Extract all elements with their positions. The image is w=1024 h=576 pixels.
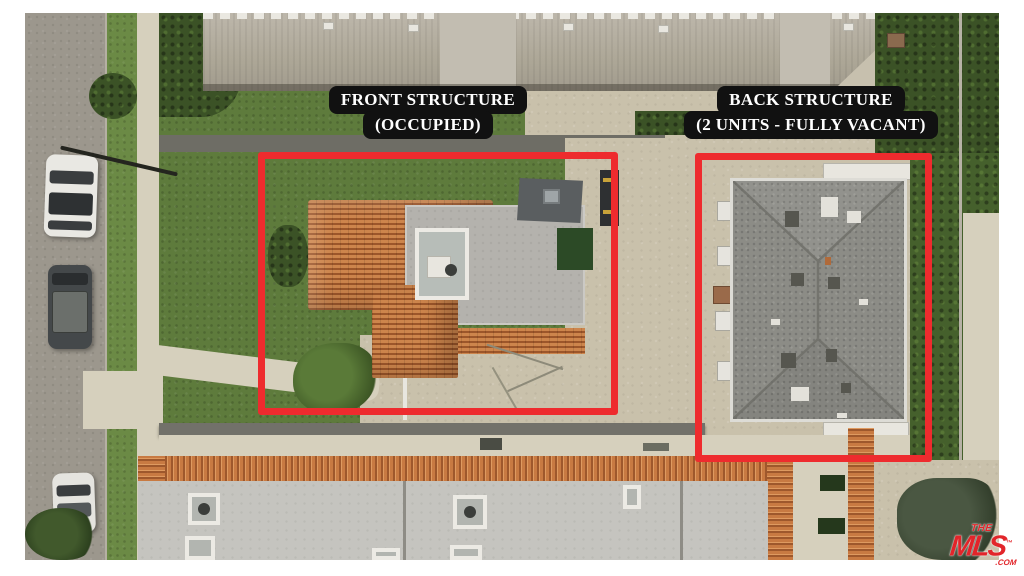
roof-vent — [323, 22, 334, 30]
top-apartment-roof — [203, 13, 880, 91]
driveway-apron — [83, 371, 163, 429]
back-label-line1: BACK STRUCTURE — [717, 86, 905, 114]
door-mat — [820, 475, 845, 491]
parked-car-white — [44, 154, 99, 238]
mls-watermark-logo: THE MLS™ .COM — [948, 524, 1024, 570]
roof-seam — [680, 481, 683, 560]
door-mat-2 — [818, 518, 845, 534]
roof-vent — [658, 25, 669, 33]
roof-section-gap — [440, 13, 516, 91]
roof-vent — [843, 23, 854, 31]
skylight — [188, 493, 220, 525]
front-structure-annotation-box — [258, 152, 618, 415]
roof-vent — [408, 24, 419, 32]
front-structure-label: FRONT STRUCTURE (OCCUPIED) — [248, 86, 608, 139]
roof-section-gap-2 — [780, 13, 830, 91]
bottom-tile-corner-right — [767, 456, 793, 560]
bottom-left-tree — [25, 508, 95, 560]
bottom-flat-roof — [138, 481, 768, 560]
right-fence-line — [959, 13, 962, 460]
roof-seam — [403, 481, 406, 560]
parked-truck-dark — [48, 265, 92, 349]
back-structure-annotation-box — [695, 153, 932, 462]
front-label-line1: FRONT STRUCTURE — [329, 86, 527, 114]
mls-logo-trademark: ™ — [1005, 540, 1013, 547]
mls-logo-word: MLS™ — [949, 533, 1024, 558]
retaining-wall — [159, 423, 705, 435]
walkway-object-2 — [643, 443, 669, 451]
bottom-right-path — [793, 456, 848, 560]
skylight — [453, 495, 487, 529]
front-label-line2: (OCCUPIED) — [363, 111, 493, 139]
ridge-caps — [203, 13, 880, 19]
back-structure-label: BACK STRUCTURE (2 UNITS - FULLY VACANT) — [676, 86, 946, 139]
right-side-path — [963, 213, 999, 465]
small-shed — [887, 33, 905, 48]
parkway-bush — [89, 73, 137, 119]
skylight — [623, 485, 641, 509]
aerial-photo: FRONT STRUCTURE (OCCUPIED) BACK STRUCTUR… — [25, 13, 999, 560]
roof-vent — [563, 23, 574, 31]
bottom-tile-ridge — [138, 456, 770, 481]
skylight — [372, 548, 400, 560]
skylight — [450, 545, 482, 560]
walkway-object — [480, 438, 502, 450]
back-label-line2: (2 UNITS - FULLY VACANT) — [684, 111, 938, 139]
listing-photo-frame: FRONT STRUCTURE (OCCUPIED) BACK STRUCTUR… — [0, 0, 1024, 576]
skylight — [185, 536, 215, 560]
